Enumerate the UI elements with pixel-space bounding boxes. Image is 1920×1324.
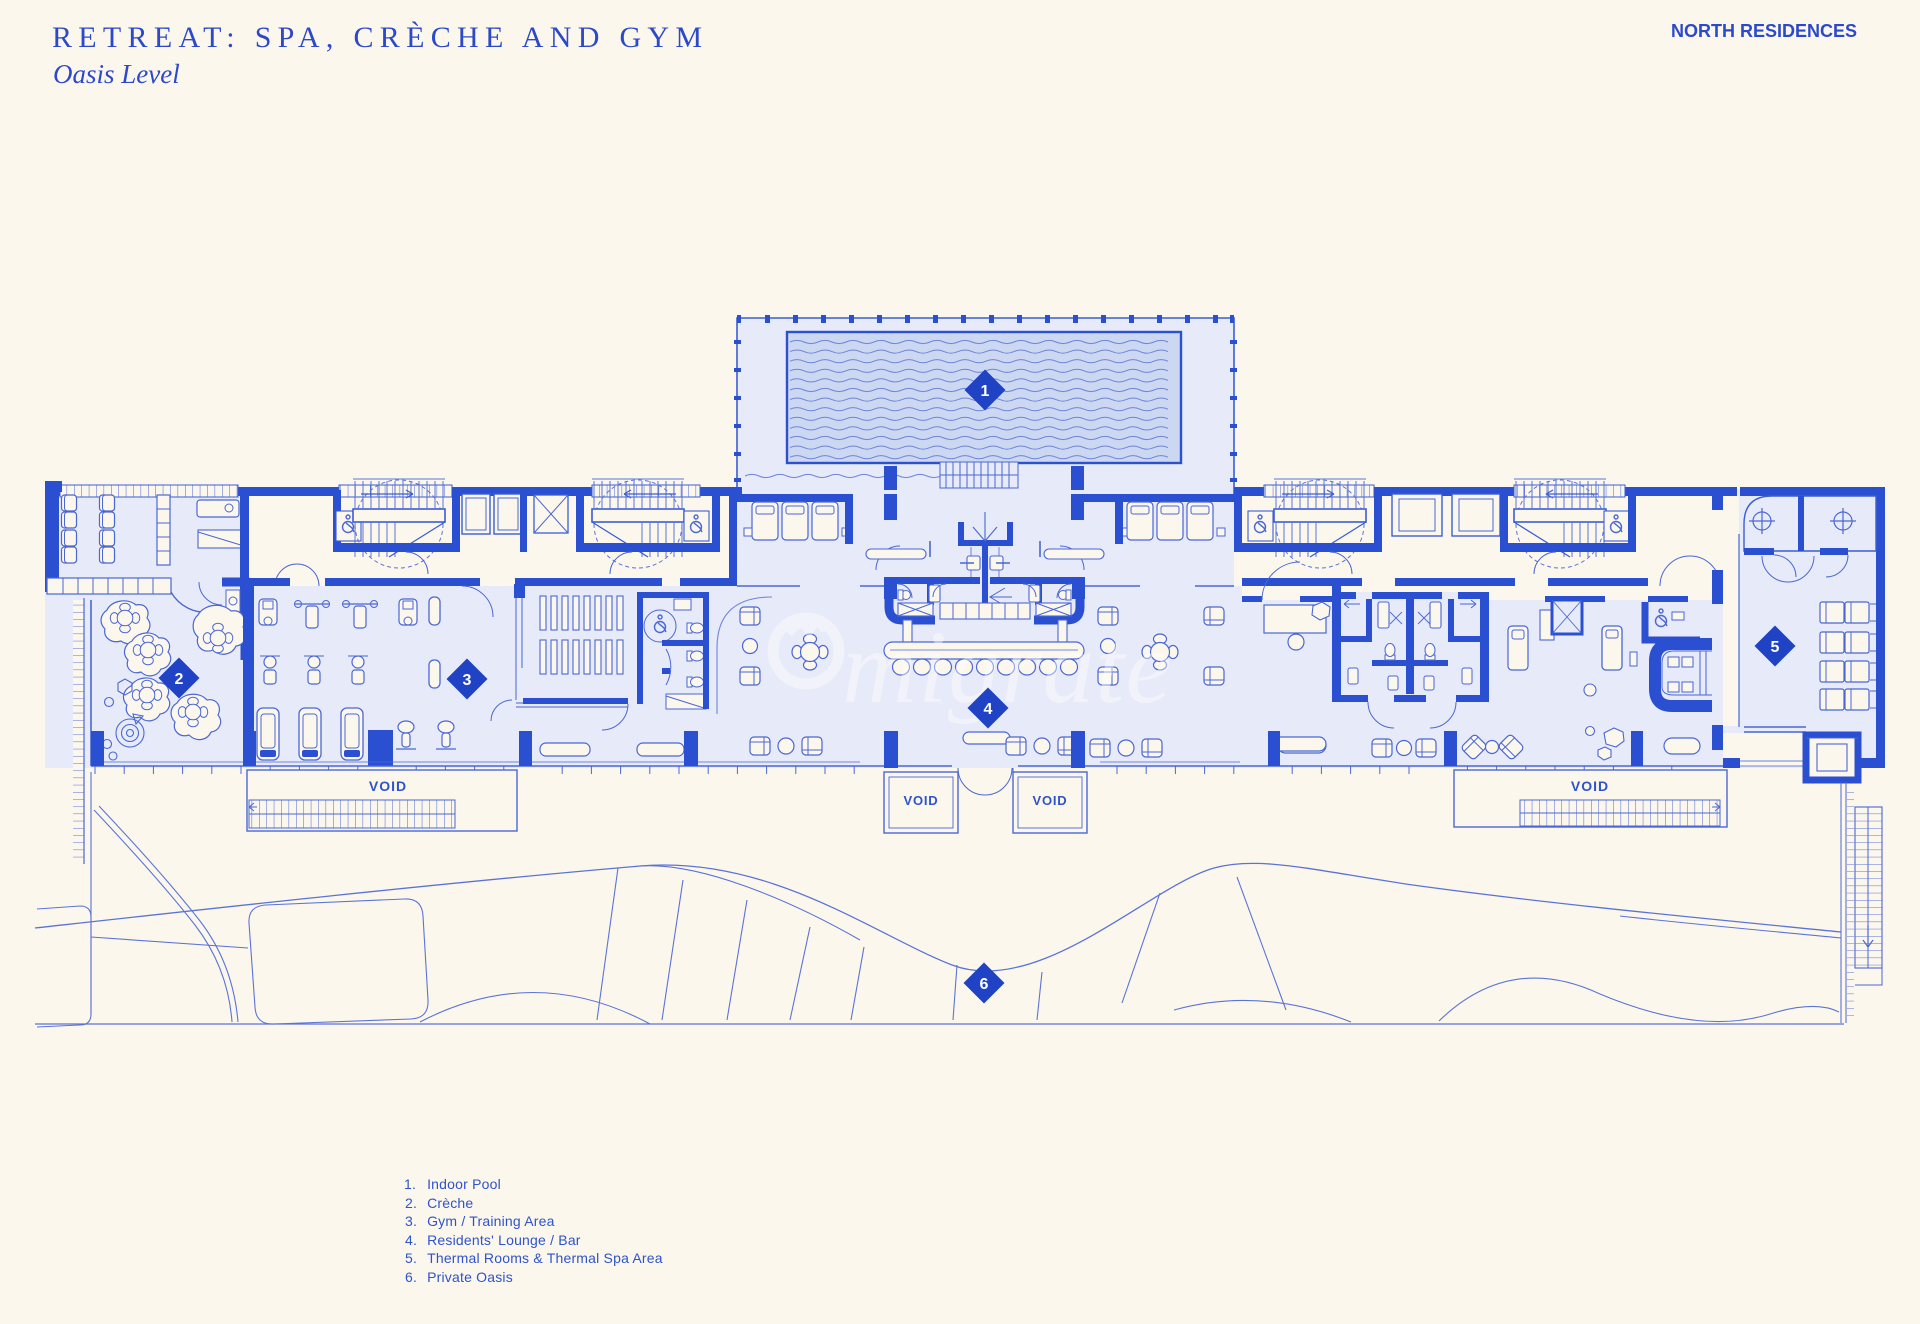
svg-text:VOID: VOID (1033, 793, 1068, 808)
svg-text:3: 3 (463, 672, 472, 689)
svg-text:1: 1 (981, 383, 990, 400)
svg-text:VOID: VOID (904, 793, 939, 808)
svg-text:6: 6 (980, 976, 989, 993)
svg-text:2: 2 (175, 671, 184, 688)
svg-text:VOID: VOID (369, 778, 407, 794)
svg-text:VOID: VOID (1571, 778, 1609, 794)
svg-text:4: 4 (984, 701, 993, 718)
svg-text:5: 5 (1771, 639, 1780, 656)
